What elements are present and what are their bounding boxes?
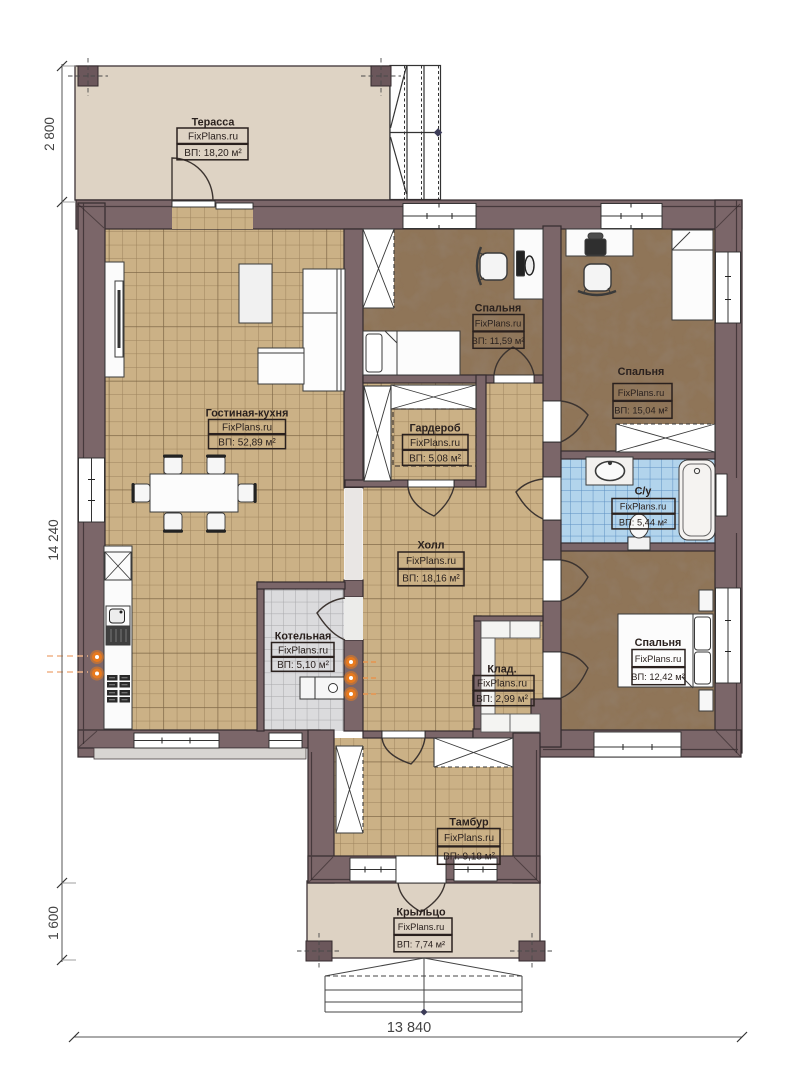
svg-text:FixPlans.ru: FixPlans.ru: [188, 132, 238, 143]
svg-text:Котельная: Котельная: [275, 631, 332, 643]
svg-text:FixPlans.ru: FixPlans.ru: [398, 922, 445, 932]
svg-text:Гардероб: Гардероб: [409, 423, 460, 435]
svg-text:13 840: 13 840: [387, 1020, 431, 1036]
svg-text:FixPlans.ru: FixPlans.ru: [618, 388, 665, 398]
svg-text:ВП: 11,59 м²: ВП: 11,59 м²: [472, 336, 525, 346]
svg-text:С/у: С/у: [635, 486, 652, 498]
svg-text:Крыльцо: Крыльцо: [396, 907, 446, 919]
svg-text:ВП: 7,74 м²: ВП: 7,74 м²: [397, 939, 445, 949]
svg-text:ВП: 15,04 м²: ВП: 15,04 м²: [614, 406, 667, 416]
svg-text:ВП: 5,10 м²: ВП: 5,10 м²: [277, 660, 330, 671]
svg-text:ВП: 12,42 м²: ВП: 12,42 м²: [631, 672, 684, 682]
svg-text:FixPlans.ru: FixPlans.ru: [477, 679, 527, 690]
svg-text:FixPlans.ru: FixPlans.ru: [444, 833, 494, 844]
svg-text:1 600: 1 600: [46, 906, 61, 940]
svg-text:ВП: 52,89 м²: ВП: 52,89 м²: [218, 437, 276, 448]
svg-text:Клад.: Клад.: [487, 664, 516, 676]
svg-text:FixPlans.ru: FixPlans.ru: [620, 502, 667, 512]
svg-text:FixPlans.ru: FixPlans.ru: [475, 319, 522, 329]
svg-text:FixPlans.ru: FixPlans.ru: [410, 438, 460, 449]
svg-text:FixPlans.ru: FixPlans.ru: [278, 645, 328, 656]
svg-text:Тамбур: Тамбур: [449, 817, 489, 829]
svg-text:ВП: 2,99 м²: ВП: 2,99 м²: [476, 694, 529, 705]
svg-text:ВП: 5,08 м²: ВП: 5,08 м²: [409, 454, 462, 465]
svg-text:ВП: 18,20 м²: ВП: 18,20 м²: [184, 148, 242, 159]
svg-text:Спальня: Спальня: [618, 366, 665, 378]
svg-text:2 800: 2 800: [42, 117, 57, 151]
svg-text:FixPlans.ru: FixPlans.ru: [406, 556, 456, 567]
svg-text:Терасса: Терасса: [192, 117, 236, 129]
svg-text:Спальня: Спальня: [635, 637, 682, 649]
svg-text:Гостиная-кухня: Гостиная-кухня: [206, 408, 289, 420]
svg-text:Холл: Холл: [417, 540, 444, 552]
svg-text:ВП: 9,18 м²: ВП: 9,18 м²: [443, 851, 496, 862]
svg-text:ВП: 5,44 м²: ВП: 5,44 м²: [619, 517, 667, 527]
svg-text:ВП: 18,16 м²: ВП: 18,16 м²: [402, 573, 460, 584]
svg-text:FixPlans.ru: FixPlans.ru: [635, 654, 682, 664]
svg-text:Спальня: Спальня: [475, 303, 522, 315]
svg-text:14 240: 14 240: [46, 519, 61, 560]
svg-text:FixPlans.ru: FixPlans.ru: [222, 422, 272, 433]
